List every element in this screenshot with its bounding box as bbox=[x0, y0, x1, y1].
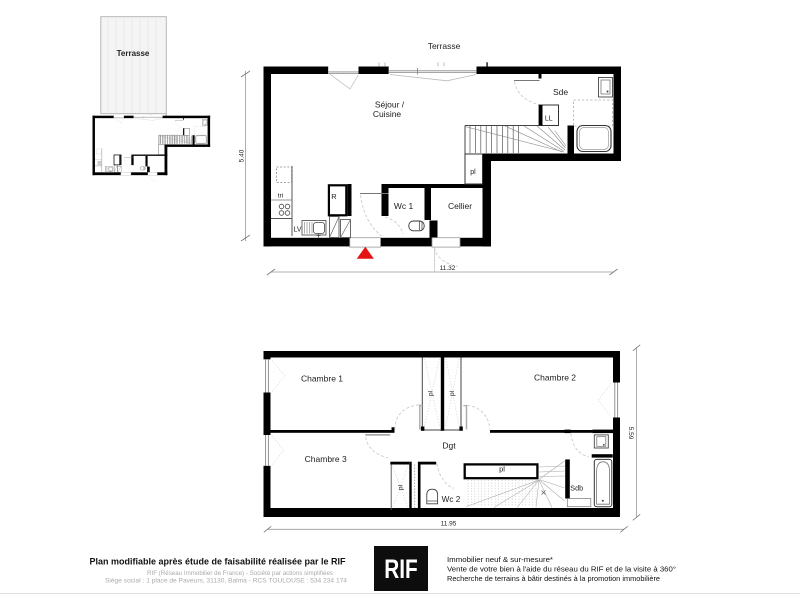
svg-text:Dgt: Dgt bbox=[442, 441, 456, 451]
svg-text:Séjour /: Séjour / bbox=[375, 100, 405, 110]
svg-text:Wc 1: Wc 1 bbox=[394, 201, 414, 211]
svg-text:tri: tri bbox=[278, 193, 283, 200]
svg-text:R: R bbox=[331, 192, 337, 201]
svg-text:Cellier: Cellier bbox=[448, 201, 472, 211]
svg-text:pl: pl bbox=[499, 465, 505, 474]
svg-text:pl: pl bbox=[398, 484, 405, 490]
svg-text:RIF (Réseau Immobilier de Fran: RIF (Réseau Immobilier de France) - Soci… bbox=[147, 570, 333, 577]
svg-text:Chambre 3: Chambre 3 bbox=[305, 454, 347, 464]
svg-text:Wc 2: Wc 2 bbox=[442, 495, 461, 504]
svg-text:Terrasse: Terrasse bbox=[428, 41, 461, 51]
svg-text:Immobilier neuf & sur-mesure*: Immobilier neuf & sur-mesure* bbox=[447, 555, 553, 564]
svg-text:pl: pl bbox=[470, 169, 476, 176]
svg-text:Plan modifiable après étude de: Plan modifiable après étude de faisabili… bbox=[90, 557, 346, 567]
svg-text:Cuisine: Cuisine bbox=[373, 109, 402, 119]
svg-text:Vente de votre bien à l'aide d: Vente de votre bien à l'aide du réseau d… bbox=[447, 565, 676, 574]
svg-text:Siège social : 1 place de Pave: Siège social : 1 place de Paveurs, 31130… bbox=[105, 578, 348, 585]
svg-text:Sdb: Sdb bbox=[570, 484, 583, 493]
svg-text:11.32: 11.32 bbox=[440, 265, 456, 272]
svg-text:Chambre 1: Chambre 1 bbox=[301, 374, 343, 384]
svg-text:LV: LV bbox=[293, 227, 301, 234]
svg-text:LL: LL bbox=[545, 116, 553, 123]
svg-text:pl: pl bbox=[449, 390, 456, 396]
svg-text:Recherche de terrains à bâtir: Recherche de terrains à bâtir destinés à… bbox=[447, 574, 660, 583]
svg-text:11.95: 11.95 bbox=[441, 521, 457, 528]
svg-text:pl: pl bbox=[427, 390, 434, 396]
svg-text:5.40: 5.40 bbox=[239, 149, 246, 162]
svg-text:RIF: RIF bbox=[384, 554, 418, 584]
svg-text:5.59: 5.59 bbox=[627, 427, 634, 440]
svg-text:Sde: Sde bbox=[553, 87, 568, 97]
svg-text:Chambre 2: Chambre 2 bbox=[534, 373, 576, 383]
svg-text:Terrasse: Terrasse bbox=[117, 49, 150, 58]
